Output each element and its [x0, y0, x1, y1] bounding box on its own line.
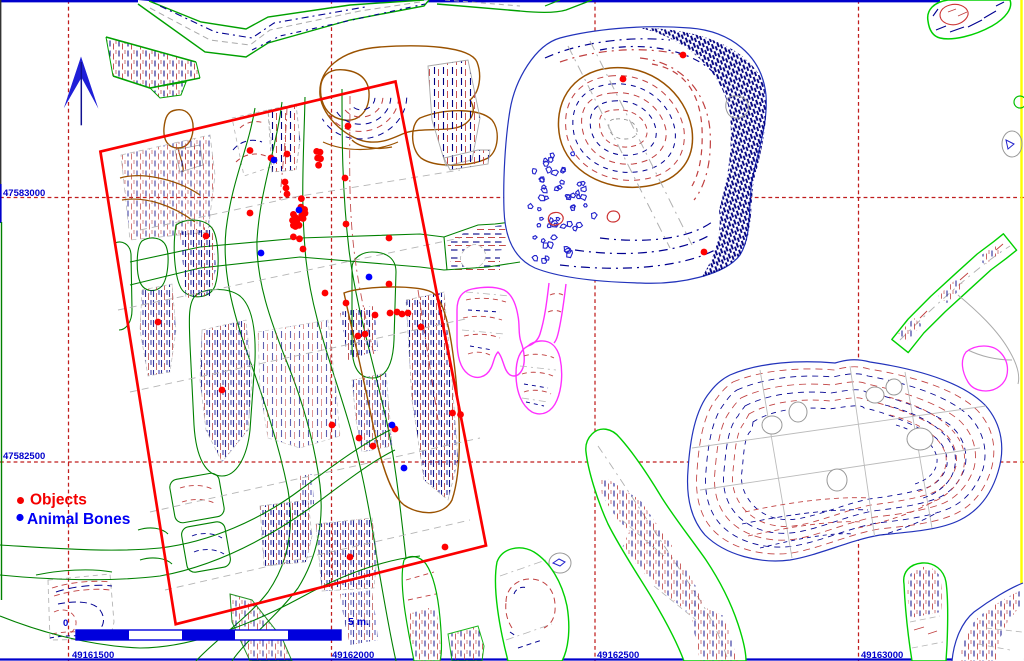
svg-text:5 m.: 5 m. — [348, 616, 369, 628]
svg-text:Animal Bones: Animal Bones — [27, 511, 130, 528]
svg-text:49161500: 49161500 — [72, 650, 114, 661]
svg-text:49163000: 49163000 — [861, 650, 903, 661]
svg-text:47582500: 47582500 — [3, 451, 45, 462]
svg-text:Objects: Objects — [30, 492, 87, 509]
svg-text:49162000: 49162000 — [332, 650, 374, 661]
svg-text:47583000: 47583000 — [3, 188, 45, 199]
svg-text:49162500: 49162500 — [597, 650, 639, 661]
svg-text:0: 0 — [63, 618, 68, 629]
